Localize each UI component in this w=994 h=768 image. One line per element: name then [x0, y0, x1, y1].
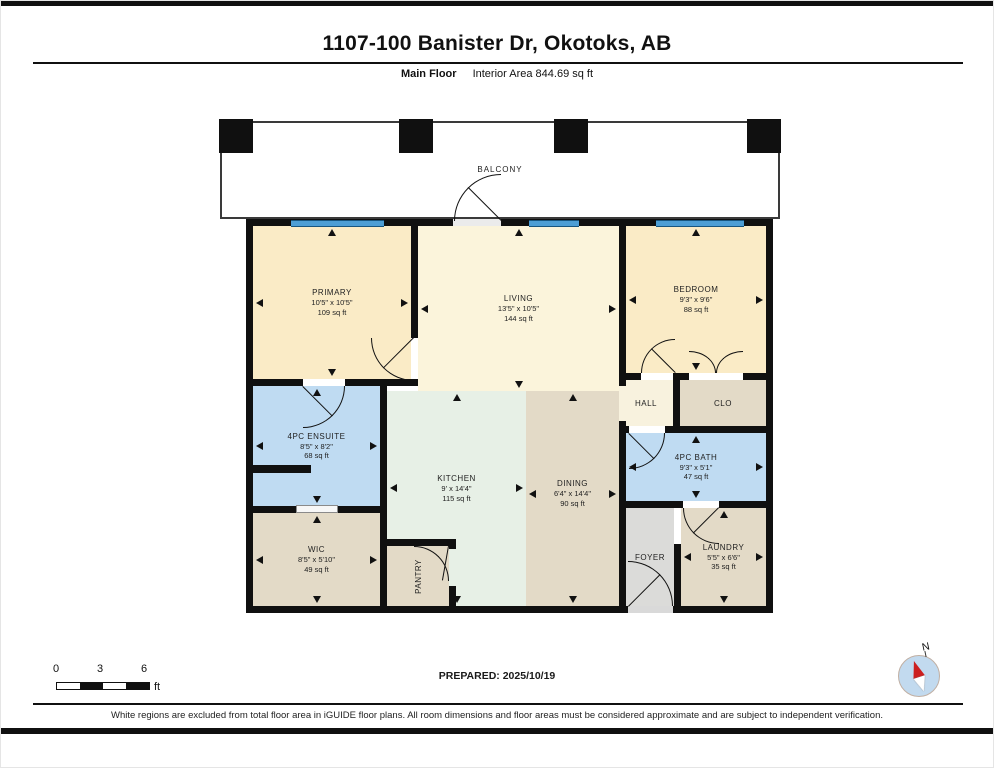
- header-rule: [33, 62, 963, 64]
- dimension-arrow: [756, 296, 763, 304]
- sliding-door: [296, 505, 338, 513]
- room-closet: CLO: [680, 380, 766, 426]
- dimension-arrow: [692, 229, 700, 236]
- dimension-arrow: [453, 394, 461, 401]
- scale-unit: ft: [154, 681, 160, 693]
- balcony-pillar: [747, 119, 781, 153]
- wall: [387, 539, 456, 546]
- compass-icon: [898, 655, 940, 697]
- room-label: LAUNDRY 5'5" x 6'6" 35 sq ft: [703, 543, 745, 572]
- wall: [619, 421, 626, 606]
- dimension-arrow: [256, 442, 263, 450]
- window: [529, 220, 579, 227]
- dimension-arrow: [756, 553, 763, 561]
- dimension-arrow: [515, 381, 523, 388]
- window: [291, 220, 384, 227]
- wall: [619, 226, 626, 386]
- room-label: DINING 6'4" x 14'4" 90 sq ft: [554, 479, 591, 508]
- wall: [246, 219, 253, 613]
- dimension-arrow: [609, 490, 616, 498]
- dimension-arrow: [328, 229, 336, 236]
- dimension-arrow: [720, 596, 728, 603]
- dimension-arrow: [421, 305, 428, 313]
- wall: [665, 426, 773, 433]
- dimension-arrow: [720, 511, 728, 518]
- dimension-arrow: [390, 484, 397, 492]
- wall: [674, 544, 681, 606]
- wall: [719, 501, 773, 508]
- dimension-arrow: [313, 516, 321, 523]
- room-label: 4PC BATH 9'3" x 5'1" 47 sq ft: [675, 453, 718, 482]
- dimension-arrow: [256, 299, 263, 307]
- dimension-arrow: [401, 299, 408, 307]
- dimension-arrow: [313, 596, 321, 603]
- dimension-arrow: [684, 553, 691, 561]
- wall: [673, 373, 680, 433]
- dimension-arrow: [256, 556, 263, 564]
- wall: [449, 586, 456, 613]
- room-label: KITCHEN 9' x 14'4" 115 sq ft: [437, 474, 476, 503]
- prepared-label: PREPARED: 2025/10/19: [1, 670, 993, 682]
- wall: [619, 426, 629, 433]
- room-hall: HALL: [619, 380, 673, 426]
- dimension-arrow: [515, 229, 523, 236]
- compass-needle: [908, 659, 931, 694]
- wall: [380, 386, 387, 606]
- compass-needle-south: [913, 675, 929, 693]
- wall: [619, 373, 641, 380]
- dimension-arrow: [692, 436, 700, 443]
- entry-door-opening: [628, 606, 673, 613]
- room-label: PRIMARY 10'5" x 10'5" 109 sq ft: [311, 288, 352, 317]
- floor-label: Main Floor: [401, 68, 457, 80]
- dimension-arrow: [609, 305, 616, 313]
- floor-subtitle: Main FloorInterior Area 844.69 sq ft: [1, 68, 993, 80]
- wall: [619, 501, 683, 508]
- dimension-arrow: [692, 491, 700, 498]
- wall: [411, 226, 418, 338]
- dimension-arrow: [516, 484, 523, 492]
- footer-rule: [33, 703, 963, 705]
- bottom-border-bar: [1, 728, 994, 734]
- floorplan-page: 1107-100 Banister Dr, Okotoks, AB Main F…: [0, 0, 994, 768]
- dimension-arrow: [569, 394, 577, 401]
- balcony-label: BALCONY: [222, 165, 778, 174]
- wall: [743, 373, 773, 380]
- dimension-arrow: [370, 442, 377, 450]
- room-label: WIC 8'5" x 5'10" 49 sq ft: [298, 545, 335, 574]
- balcony-pillar: [399, 119, 433, 153]
- wall: [246, 379, 303, 386]
- wall: [449, 539, 456, 549]
- room-label: BEDROOM 9'3" x 9'6" 88 sq ft: [674, 285, 719, 314]
- interior-area-label: Interior Area 844.69 sq ft: [473, 68, 593, 80]
- north-label: N: [921, 640, 931, 653]
- dimension-arrow: [328, 369, 336, 376]
- scale-bar: [56, 682, 150, 690]
- dimension-arrow: [629, 296, 636, 304]
- wall: [766, 219, 773, 613]
- wall-stub: [253, 465, 311, 473]
- dimension-arrow: [313, 496, 321, 503]
- dimension-arrow: [756, 463, 763, 471]
- window: [656, 220, 744, 227]
- disclaimer-text: White regions are excluded from total fl…: [1, 710, 993, 721]
- room-living: LIVING 13'5" x 10'5" 144 sq ft: [418, 226, 619, 391]
- room-label: LIVING 13'5" x 10'5" 144 sq ft: [498, 294, 539, 323]
- page-title: 1107-100 Banister Dr, Okotoks, AB: [1, 32, 993, 56]
- wall: [246, 606, 773, 613]
- room-wic: WIC 8'5" x 5'10" 49 sq ft: [253, 513, 380, 606]
- balcony-pillar: [554, 119, 588, 153]
- dimension-arrow: [370, 556, 377, 564]
- room-dining: DINING 6'4" x 14'4" 90 sq ft: [526, 391, 619, 606]
- dimension-arrow: [529, 490, 536, 498]
- balcony-pillar: [219, 119, 253, 153]
- room-label: 4PC ENSUITE 8'5" x 8'2" 68 sq ft: [288, 432, 346, 461]
- top-border-bar: [1, 1, 994, 6]
- dimension-arrow: [569, 596, 577, 603]
